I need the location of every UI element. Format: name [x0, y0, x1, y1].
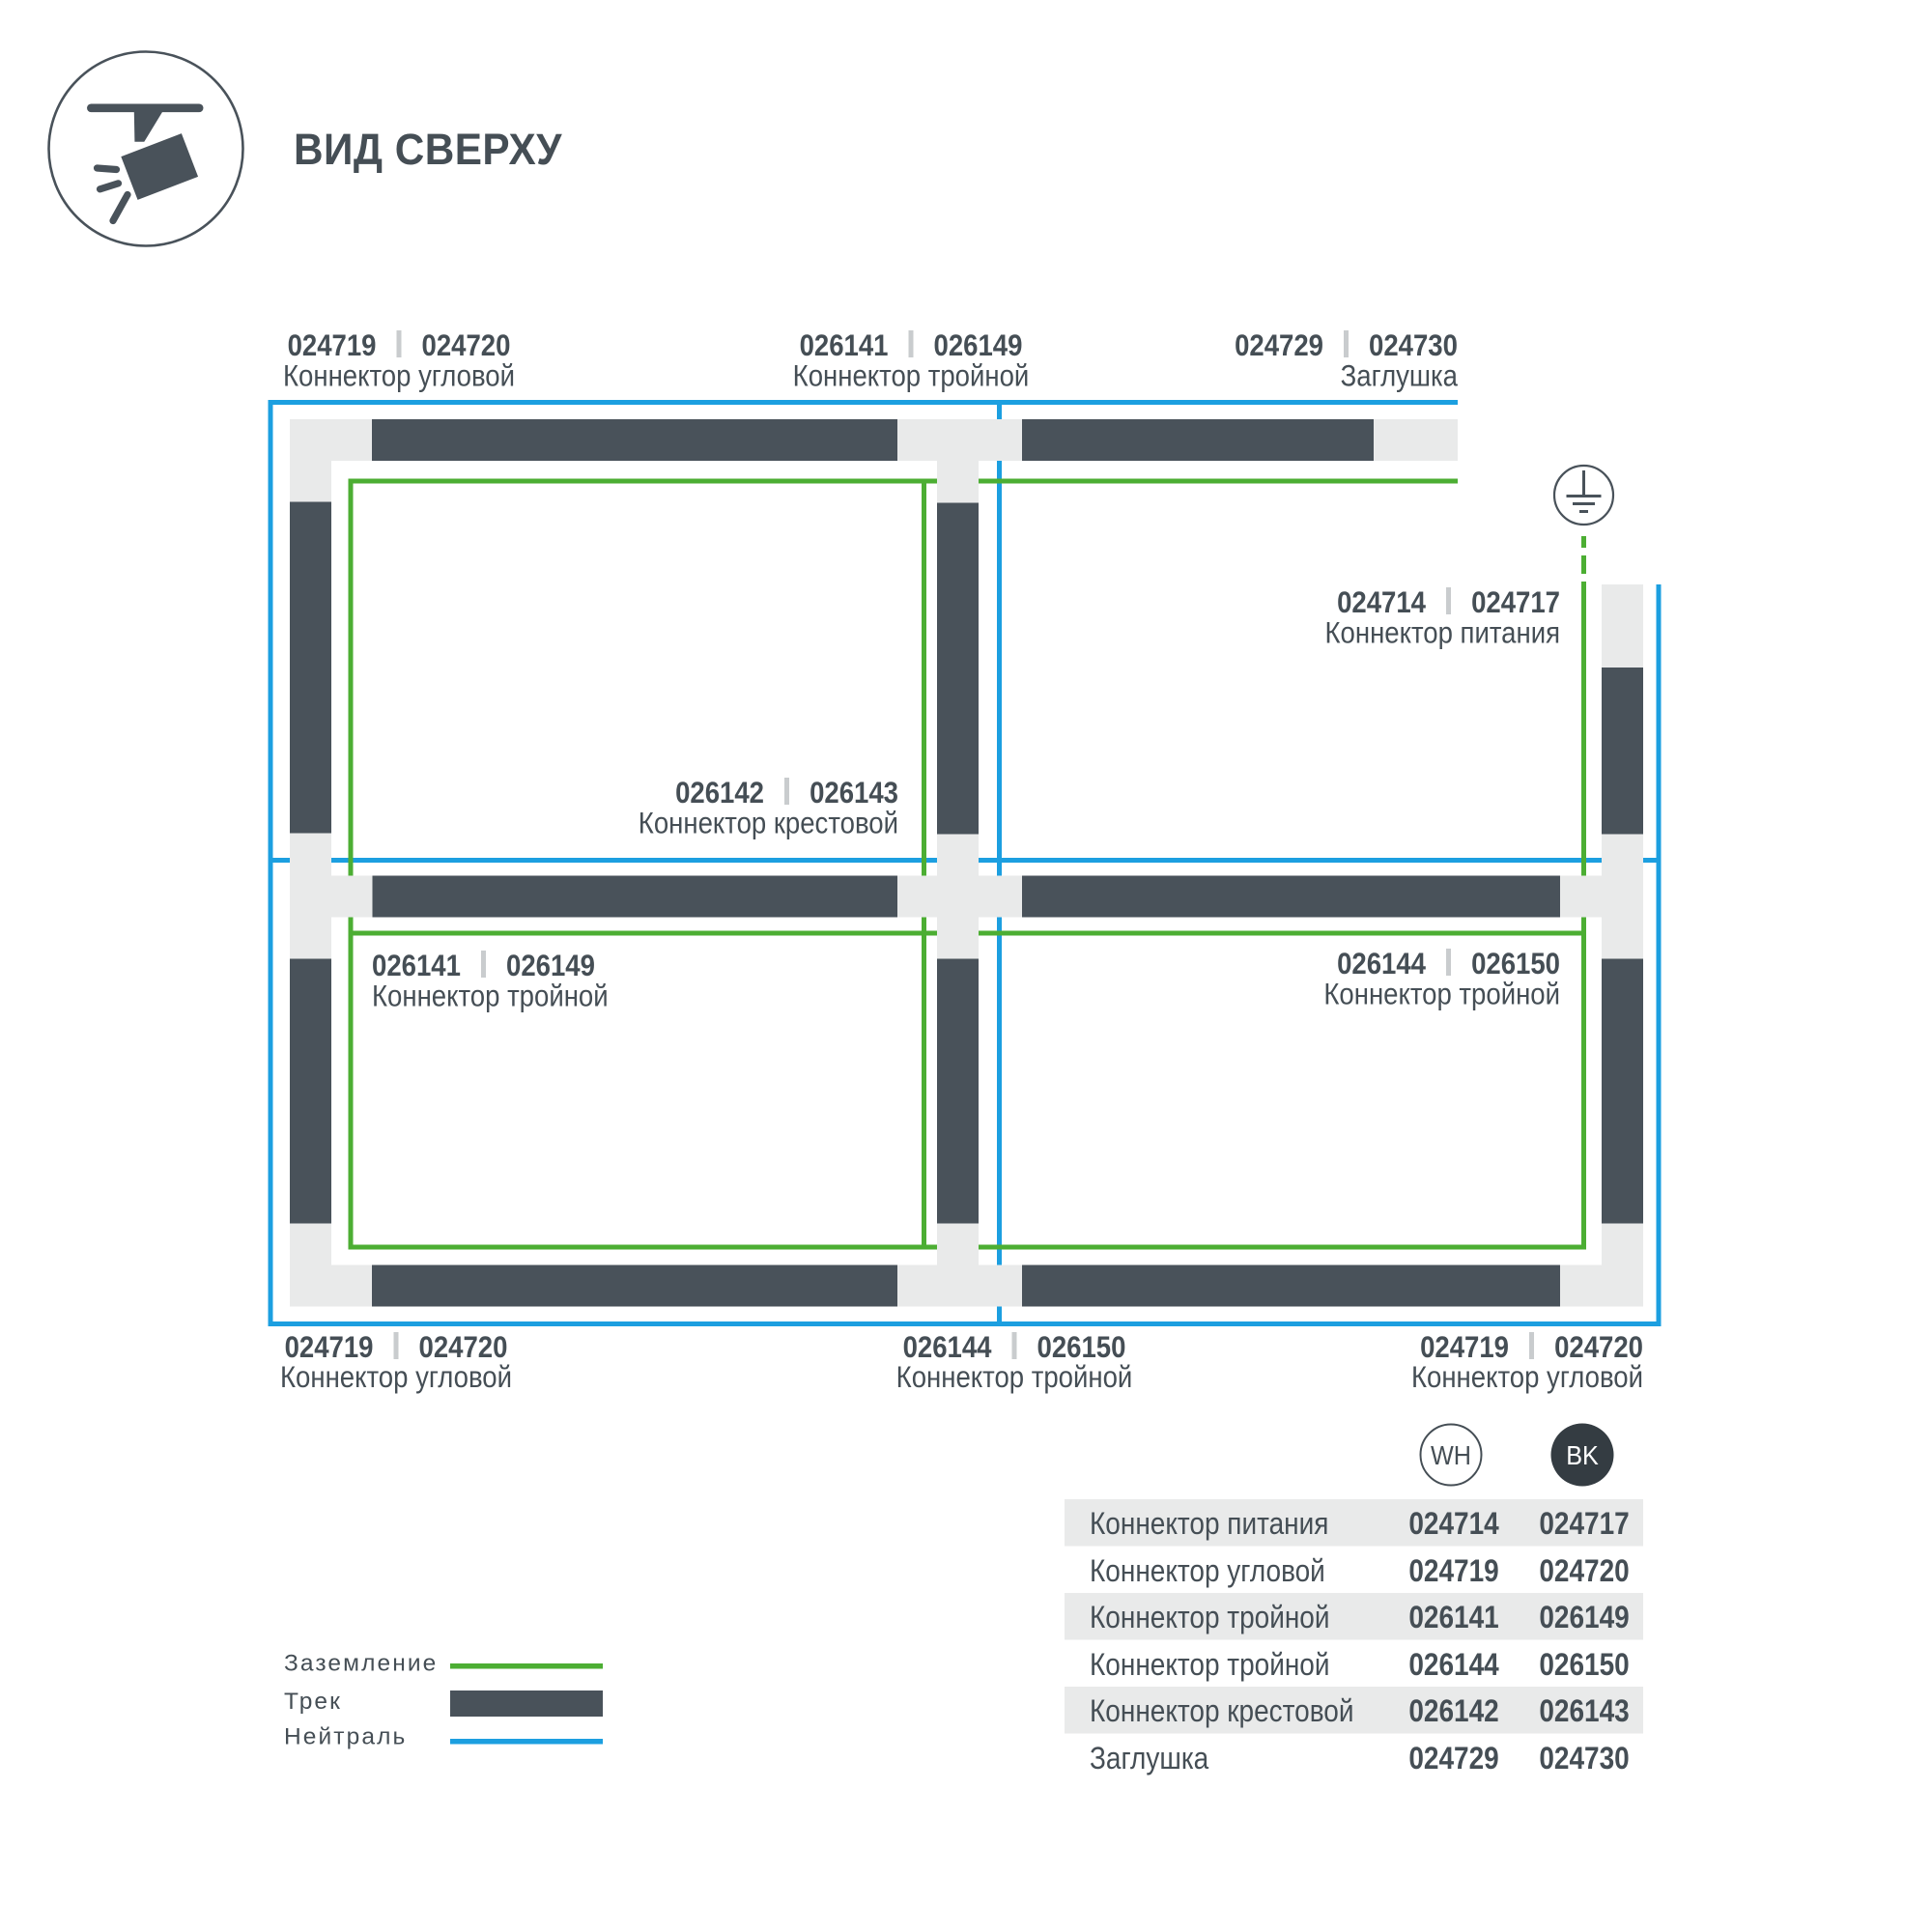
svg-text:026141: 026141 [372, 949, 461, 982]
svg-text:Коннектор тройной: Коннектор тройной [1090, 1602, 1330, 1635]
svg-text:Нейтраль: Нейтраль [284, 1724, 407, 1750]
svg-text:BK: BK [1566, 1440, 1599, 1471]
svg-text:Коннектор угловой: Коннектор угловой [283, 359, 515, 393]
svg-text:Заглушка: Заглушка [1341, 359, 1459, 393]
svg-text:024720: 024720 [1554, 1330, 1643, 1364]
svg-text:026149: 026149 [1539, 1602, 1629, 1635]
svg-text:024717: 024717 [1471, 585, 1560, 619]
svg-text:026143: 026143 [1539, 1695, 1629, 1729]
svg-text:Коннектор угловой: Коннектор угловой [1090, 1554, 1325, 1588]
svg-text:024719: 024719 [1408, 1554, 1498, 1588]
svg-text:024714: 024714 [1337, 585, 1426, 619]
svg-text:Коннектор крестовой: Коннектор крестовой [1090, 1695, 1353, 1729]
svg-text:026141: 026141 [1408, 1602, 1498, 1635]
svg-text:026141: 026141 [800, 328, 889, 362]
svg-text:Коннектор тройной: Коннектор тройной [372, 980, 609, 1013]
svg-text:Коннектор угловой: Коннектор угловой [280, 1360, 512, 1394]
svg-text:Коннектор тройной: Коннектор тройной [1323, 978, 1560, 1011]
svg-text:024717: 024717 [1539, 1508, 1629, 1542]
svg-text:Коннектор тройной: Коннектор тройной [793, 359, 1030, 393]
svg-text:024730: 024730 [1539, 1742, 1629, 1776]
svg-text:026150: 026150 [1471, 947, 1560, 980]
svg-text:026143: 026143 [810, 776, 898, 810]
svg-text:026144: 026144 [903, 1330, 992, 1364]
svg-text:026144: 026144 [1337, 947, 1426, 980]
svg-text:026150: 026150 [1539, 1648, 1629, 1682]
svg-text:Трек: Трек [284, 1689, 342, 1715]
svg-text:024729: 024729 [1408, 1742, 1498, 1776]
svg-text:026142: 026142 [675, 776, 764, 810]
svg-text:ВИД СВЕРХУ: ВИД СВЕРХУ [294, 126, 562, 175]
svg-text:Коннектор угловой: Коннектор угловой [1411, 1360, 1643, 1394]
svg-text:Коннектор тройной: Коннектор тройной [896, 1360, 1133, 1394]
svg-text:024720: 024720 [419, 1330, 508, 1364]
svg-text:024719: 024719 [285, 1330, 374, 1364]
svg-text:WH: WH [1431, 1440, 1471, 1471]
svg-text:024719: 024719 [1420, 1330, 1509, 1364]
svg-text:024719: 024719 [288, 328, 377, 362]
svg-text:Коннектор крестовой: Коннектор крестовой [639, 807, 898, 840]
svg-text:026150: 026150 [1037, 1330, 1126, 1364]
svg-text:Заглушка: Заглушка [1090, 1742, 1209, 1776]
svg-text:026149: 026149 [506, 949, 595, 982]
svg-text:026144: 026144 [1408, 1648, 1499, 1682]
svg-text:026149: 026149 [934, 328, 1023, 362]
svg-text:024720: 024720 [1539, 1554, 1629, 1588]
svg-text:Коннектор тройной: Коннектор тройной [1090, 1648, 1330, 1682]
svg-text:024714: 024714 [1408, 1508, 1499, 1542]
svg-text:Коннектор питания: Коннектор питания [1324, 616, 1560, 650]
svg-text:024730: 024730 [1369, 328, 1458, 362]
svg-text:024720: 024720 [422, 328, 511, 362]
svg-text:024729: 024729 [1235, 328, 1323, 362]
svg-text:026142: 026142 [1408, 1695, 1498, 1729]
svg-text:Коннектор питания: Коннектор питания [1090, 1508, 1328, 1542]
svg-text:Заземление: Заземление [284, 1651, 438, 1677]
